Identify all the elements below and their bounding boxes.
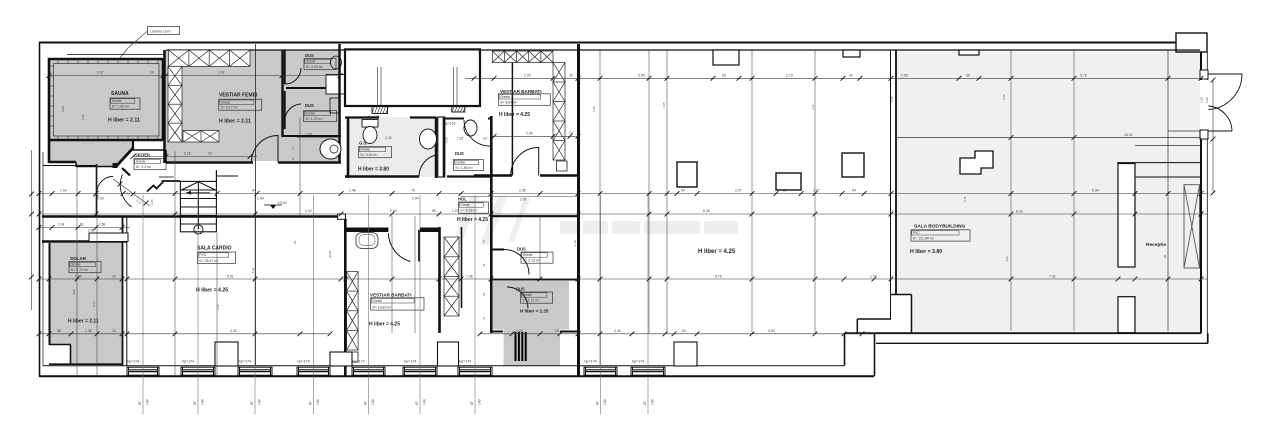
svg-text:143: 143 xyxy=(258,399,262,405)
svg-text:H liber = 4.25: H liber = 4.25 xyxy=(457,217,488,223)
svg-text:PVC: PVC xyxy=(199,253,206,257)
svg-text:hp=163: hp=163 xyxy=(444,122,456,126)
svg-text:87: 87 xyxy=(138,401,142,405)
svg-text:1.20: 1.20 xyxy=(457,137,463,141)
svg-text:3.16: 3.16 xyxy=(216,304,220,310)
svg-text:S= 3.42 m²: S= 3.42 m² xyxy=(360,153,378,157)
svg-text:2.65: 2.65 xyxy=(890,96,894,102)
svg-text:S= 13.83 m²: S= 13.83 m² xyxy=(372,306,392,310)
svg-text:10: 10 xyxy=(483,137,487,141)
svg-text:90: 90 xyxy=(1163,254,1167,258)
svg-text:3.42: 3.42 xyxy=(592,106,596,112)
svg-text:H liber = 4.25: H liber = 4.25 xyxy=(196,288,228,294)
svg-text:2.68: 2.68 xyxy=(81,114,85,120)
svg-text:2.40: 2.40 xyxy=(1205,97,1209,103)
svg-text:S= 2.13 m²: S= 2.13 m² xyxy=(523,259,541,263)
svg-text:Gresie: Gresie xyxy=(136,160,146,164)
svg-text:Receptie: Receptie xyxy=(1146,242,1166,248)
svg-text:89: 89 xyxy=(432,209,436,213)
svg-text:DUS: DUS xyxy=(517,247,526,252)
svg-text:Gresie: Gresie xyxy=(360,148,370,152)
svg-text:Gresie: Gresie xyxy=(460,203,470,207)
svg-text:143: 143 xyxy=(371,399,375,405)
svg-text:67: 67 xyxy=(482,239,486,243)
svg-text:3.56: 3.56 xyxy=(638,73,645,77)
svg-text:10: 10 xyxy=(150,71,154,75)
svg-text:1.00: 1.00 xyxy=(60,189,67,193)
svg-text:54: 54 xyxy=(852,189,856,193)
svg-text:5.76: 5.76 xyxy=(1080,73,1087,77)
svg-text:87: 87 xyxy=(470,401,474,405)
svg-text:Gresie: Gresie xyxy=(112,99,122,103)
svg-text:2.95: 2.95 xyxy=(662,102,666,108)
svg-text:2.00: 2.00 xyxy=(526,131,533,135)
svg-text:S= 9.17 m²: S= 9.17 m² xyxy=(221,106,239,110)
svg-text:Gresie: Gresie xyxy=(71,263,81,267)
svg-text:1.38: 1.38 xyxy=(85,329,92,333)
svg-text:3.16: 3.16 xyxy=(92,301,96,307)
svg-text:S= 2.00 m²: S= 2.00 m² xyxy=(306,65,324,69)
svg-text:2.34: 2.34 xyxy=(614,329,621,333)
svg-text:H liber = 2.11: H liber = 2.11 xyxy=(108,118,140,124)
svg-text:87: 87 xyxy=(364,401,368,405)
svg-text:81: 81 xyxy=(80,223,84,227)
svg-text:Gresie: Gresie xyxy=(500,95,510,99)
svg-text:S= 8.87 m²: S= 8.87 m² xyxy=(500,101,518,105)
svg-text:87: 87 xyxy=(596,401,600,405)
svg-text:3.17: 3.17 xyxy=(811,104,815,110)
svg-text:2.04: 2.04 xyxy=(412,197,419,201)
svg-text:54: 54 xyxy=(681,189,685,193)
svg-text:67: 67 xyxy=(482,292,486,296)
svg-text:VESTIAR BARBATI: VESTIAR BARBATI xyxy=(370,293,412,298)
svg-text:67: 67 xyxy=(783,189,787,193)
svg-text:H liber = 3.80: H liber = 3.80 xyxy=(358,167,389,173)
svg-text:10: 10 xyxy=(208,152,212,156)
svg-text:Gresie: Gresie xyxy=(221,100,231,104)
svg-text:10: 10 xyxy=(112,329,116,333)
svg-text:87: 87 xyxy=(415,401,419,405)
svg-text:H liber = 4.25: H liber = 4.25 xyxy=(499,112,530,118)
svg-text:8.26: 8.26 xyxy=(703,209,710,213)
svg-text:S= 3.3 m²: S= 3.3 m² xyxy=(136,165,152,169)
svg-text:hp=174: hp=174 xyxy=(298,359,310,363)
svg-text:H liber = 2.11: H liber = 2.11 xyxy=(219,119,251,125)
svg-text:S= 7.00 m²: S= 7.00 m² xyxy=(112,105,130,109)
svg-text:5.11: 5.11 xyxy=(251,267,255,273)
svg-text:Gresie: Gresie xyxy=(306,60,316,64)
svg-text:HOL: HOL xyxy=(458,197,467,202)
svg-text:69: 69 xyxy=(722,73,726,77)
svg-text:S= 6.93 m²: S= 6.93 m² xyxy=(460,209,478,213)
svg-text:2.42: 2.42 xyxy=(385,136,392,140)
svg-text:50: 50 xyxy=(966,73,970,77)
svg-text:1.10: 1.10 xyxy=(573,240,577,246)
svg-text:2.64: 2.64 xyxy=(390,209,397,213)
svg-text:1.07: 1.07 xyxy=(813,189,820,193)
svg-text:Lambriu Lemn: Lambriu Lemn xyxy=(150,29,171,33)
svg-text:±0.00: ±0.00 xyxy=(278,201,287,205)
svg-text:5.51: 5.51 xyxy=(227,274,234,278)
svg-text:143: 143 xyxy=(146,399,150,405)
svg-text:2.07: 2.07 xyxy=(735,189,742,193)
svg-text:hp=174: hp=174 xyxy=(459,359,471,363)
svg-text:20: 20 xyxy=(555,329,559,333)
svg-text:hp=174: hp=174 xyxy=(127,359,139,363)
svg-text:S= 121.84 m²: S= 121.84 m² xyxy=(913,237,935,241)
svg-text:143: 143 xyxy=(603,399,607,405)
svg-text:hp=174: hp=174 xyxy=(585,359,597,363)
svg-text:2.06: 2.06 xyxy=(88,229,94,233)
svg-text:70: 70 xyxy=(411,189,415,193)
svg-text:2.08: 2.08 xyxy=(61,106,65,112)
svg-text:S= 5.72 m²: S= 5.72 m² xyxy=(71,268,89,272)
svg-text:5.34: 5.34 xyxy=(1092,189,1099,193)
svg-text:2.58: 2.58 xyxy=(901,73,908,77)
svg-text:3.90: 3.90 xyxy=(768,329,775,333)
svg-text:H liber = 4.25: H liber = 4.25 xyxy=(698,249,736,255)
svg-text:S= 1.83 m²: S= 1.83 m² xyxy=(455,166,473,170)
svg-text:DUS: DUS xyxy=(305,103,314,108)
svg-text:20: 20 xyxy=(569,131,573,135)
svg-text:143: 143 xyxy=(478,399,482,405)
svg-text:2.00: 2.00 xyxy=(524,73,531,77)
svg-text:Gresie: Gresie xyxy=(372,299,382,303)
svg-text:143: 143 xyxy=(316,399,320,405)
svg-text:2.18: 2.18 xyxy=(184,152,191,156)
svg-text:H liber = 2.11: H liber = 2.11 xyxy=(68,319,99,325)
svg-text:SOLAR: SOLAR xyxy=(70,256,87,261)
svg-text:1.27: 1.27 xyxy=(452,209,459,213)
svg-text:H liber = 2.25: H liber = 2.25 xyxy=(520,309,549,314)
svg-text:2.71: 2.71 xyxy=(963,196,967,202)
svg-text:2.05: 2.05 xyxy=(520,198,526,202)
svg-text:6.76: 6.76 xyxy=(715,274,722,278)
svg-text:2.00: 2.00 xyxy=(97,197,104,201)
svg-text:2.67: 2.67 xyxy=(97,71,104,75)
svg-text:2.46: 2.46 xyxy=(150,199,154,205)
svg-text:Gresie: Gresie xyxy=(305,112,315,116)
svg-text:1.04: 1.04 xyxy=(58,223,64,227)
svg-text:10: 10 xyxy=(112,274,116,278)
svg-text:S= 1.22 m²: S= 1.22 m² xyxy=(305,117,323,121)
svg-text:H liber = 4.25: H liber = 4.25 xyxy=(369,322,400,328)
svg-text:77: 77 xyxy=(291,146,295,150)
svg-text:hp=174: hp=174 xyxy=(182,359,194,363)
svg-text:84: 84 xyxy=(252,189,256,193)
svg-text:hp=174: hp=174 xyxy=(632,359,644,363)
svg-text:87: 87 xyxy=(193,401,197,405)
svg-text:1.58: 1.58 xyxy=(99,223,105,227)
svg-text:18.22: 18.22 xyxy=(1124,133,1133,137)
svg-text:1.24: 1.24 xyxy=(516,329,523,333)
svg-text:62: 62 xyxy=(682,329,686,333)
svg-text:143: 143 xyxy=(651,399,655,405)
svg-text:hp=174: hp=174 xyxy=(353,359,365,363)
svg-text:1.48: 1.48 xyxy=(349,189,356,193)
svg-text:87: 87 xyxy=(250,401,254,405)
svg-text:20: 20 xyxy=(569,73,573,77)
svg-text:3.66: 3.66 xyxy=(72,289,76,295)
svg-text:1.36: 1.36 xyxy=(466,274,473,278)
svg-text:2.05: 2.05 xyxy=(519,189,526,193)
svg-text:87: 87 xyxy=(309,401,313,405)
svg-text:2.00: 2.00 xyxy=(1200,97,1204,103)
svg-text:20,20: 20,20 xyxy=(328,250,332,258)
svg-text:SALA BODYBUILDING: SALA BODYBUILDING xyxy=(914,224,966,230)
svg-text:47: 47 xyxy=(482,316,486,320)
svg-text:4.66: 4.66 xyxy=(1005,256,1009,262)
svg-text:S= 35.17 m²: S= 35.17 m² xyxy=(199,259,219,263)
svg-text:SAUNA: SAUNA xyxy=(111,91,129,97)
svg-text:2.73: 2.73 xyxy=(786,73,793,77)
svg-text:47: 47 xyxy=(482,263,486,267)
svg-text:2.65: 2.65 xyxy=(1002,94,1006,100)
svg-text:G.S.: G.S. xyxy=(359,141,367,146)
svg-text:1.02: 1.02 xyxy=(305,209,312,213)
svg-text:VESTIAR FEMEI: VESTIAR FEMEI xyxy=(219,93,258,99)
svg-text:hp=174: hp=174 xyxy=(404,359,416,363)
svg-text:hp=174: hp=174 xyxy=(239,359,251,363)
svg-text:Gresie: Gresie xyxy=(455,161,465,165)
svg-text:DUS: DUS xyxy=(516,287,525,292)
svg-text:87: 87 xyxy=(643,401,647,405)
svg-text:7.52: 7.52 xyxy=(1049,274,1056,278)
svg-text:1.50: 1.50 xyxy=(445,137,449,143)
svg-text:PVC: PVC xyxy=(913,231,920,235)
svg-text:36: 36 xyxy=(293,240,297,244)
svg-text:SALA CARDIO: SALA CARDIO xyxy=(197,246,232,252)
svg-text:Gresie: Gresie xyxy=(522,293,532,297)
svg-text:1.43: 1.43 xyxy=(305,133,312,137)
svg-text:Gresie: Gresie xyxy=(523,253,533,257)
svg-text:58: 58 xyxy=(57,329,61,333)
svg-text:VESTIAR BARBATI: VESTIAR BARBATI xyxy=(500,89,542,94)
svg-text:2.09: 2.09 xyxy=(257,197,264,201)
svg-text:S= 2.71 m²: S= 2.71 m² xyxy=(522,299,540,303)
svg-text:143: 143 xyxy=(201,399,205,405)
svg-text:1.74: 1.74 xyxy=(870,274,877,278)
svg-text:143: 143 xyxy=(423,399,427,405)
svg-text:DUS: DUS xyxy=(455,151,464,156)
svg-text:H liber = 3.80: H liber = 3.80 xyxy=(910,249,942,255)
svg-text:42: 42 xyxy=(849,73,853,77)
svg-text:16: 16 xyxy=(291,156,295,160)
svg-text:DUS: DUS xyxy=(305,53,314,58)
svg-text:2.32: 2.32 xyxy=(230,329,237,333)
svg-text:2.02: 2.02 xyxy=(218,71,225,75)
svg-text:8.26: 8.26 xyxy=(1016,210,1023,214)
